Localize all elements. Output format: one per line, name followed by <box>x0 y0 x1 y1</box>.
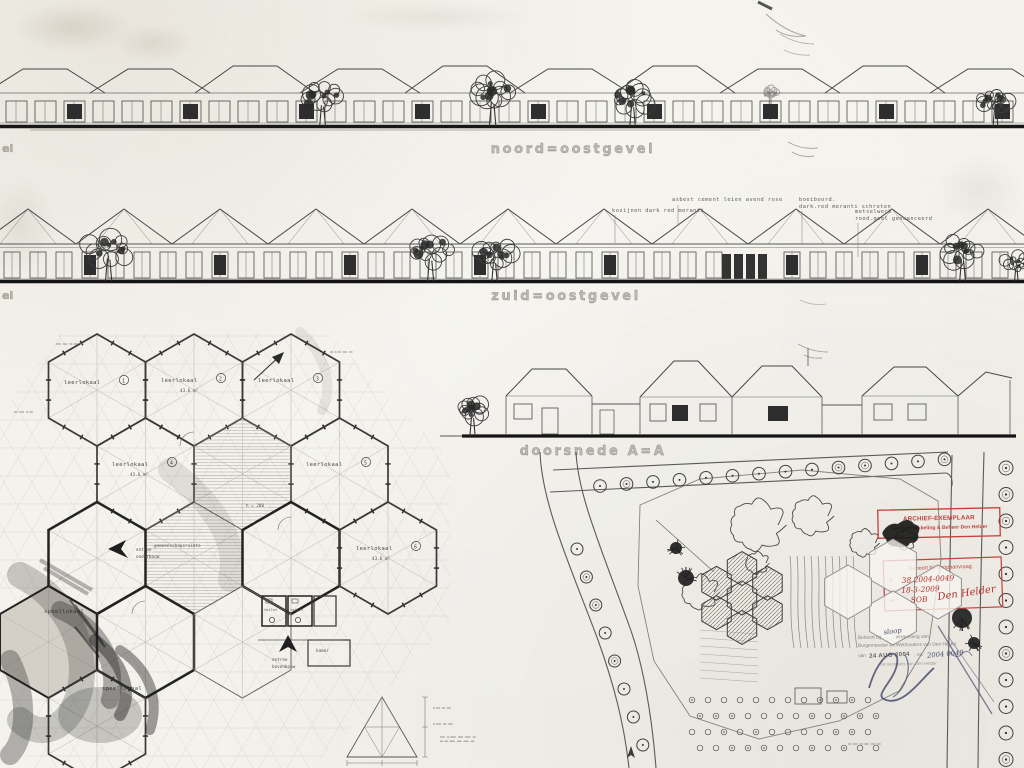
circle-mark <box>801 697 807 703</box>
room-number-1: 1 <box>122 379 125 385</box>
spec-note-roof: asbest cement leien avend rose <box>672 197 783 203</box>
circle-mark <box>1005 758 1007 760</box>
circle-mark <box>953 243 960 250</box>
circle-mark <box>1005 493 1007 495</box>
path-mark <box>172 209 268 244</box>
circle-mark <box>1005 626 1007 628</box>
circle-mark <box>480 248 488 256</box>
line-mark <box>194 362 242 390</box>
line-mark <box>194 642 242 670</box>
rect-mark <box>67 104 82 119</box>
circle-mark <box>632 716 634 718</box>
circle-mark <box>777 745 783 751</box>
path-mark <box>576 209 632 244</box>
path-mark <box>76 209 172 244</box>
circle-mark <box>641 91 645 95</box>
circle-mark <box>721 697 727 703</box>
path-mark <box>818 556 822 648</box>
circle-mark <box>811 715 813 717</box>
line-mark <box>291 558 339 586</box>
path-mark <box>364 209 460 244</box>
circle-mark <box>1005 599 1007 601</box>
circle-mark <box>1005 573 1007 575</box>
circle-mark <box>865 729 871 735</box>
tree-icon <box>470 71 516 126</box>
site-orchard-rows <box>689 697 879 751</box>
path-mark <box>460 209 556 244</box>
circle-mark <box>599 485 601 487</box>
room-area-4: 43.6 m² <box>130 472 148 478</box>
circle-mark <box>793 713 799 719</box>
toilet-label-1: toilet <box>264 608 277 612</box>
line-mark <box>243 390 291 418</box>
elevation-windows <box>6 101 1013 122</box>
rect-mark <box>557 101 578 122</box>
rect-mark <box>847 101 868 122</box>
circle-mark <box>576 548 578 550</box>
circle-mark <box>488 81 493 86</box>
rect-mark <box>604 255 616 275</box>
circle-mark <box>851 731 853 733</box>
link-roofs <box>592 404 862 405</box>
rect-mark <box>238 101 259 122</box>
circle-mark <box>412 247 418 253</box>
line-mark <box>243 530 291 558</box>
circle-mark <box>758 473 760 475</box>
circle-mark <box>731 715 733 717</box>
path-mark <box>268 209 364 244</box>
circle-mark <box>1005 705 1007 707</box>
circle-mark <box>825 713 831 719</box>
circle-mark <box>980 102 986 108</box>
cloud-tree-icon <box>850 529 880 558</box>
spec-note-masonry-1: metselwerk <box>855 209 892 215</box>
circle-mark <box>504 85 512 93</box>
line-mark <box>291 390 339 418</box>
circle-mark <box>713 745 719 751</box>
path-mark <box>825 66 945 93</box>
small-north-marker <box>627 746 635 758</box>
circle-mark <box>769 729 775 735</box>
path-mark <box>192 209 248 244</box>
section-title: doorsnede A=A <box>520 444 667 459</box>
rect-mark <box>531 104 546 119</box>
circle-mark <box>943 458 945 460</box>
rect-mark <box>267 101 288 122</box>
rect-mark <box>734 254 743 279</box>
entrance-1-label-line2: onderbouw <box>136 554 160 560</box>
circle-mark <box>964 249 969 254</box>
rect-mark <box>354 101 375 122</box>
circle-mark <box>763 747 765 749</box>
rect-mark <box>415 104 430 119</box>
illegible-detail-notes <box>433 708 476 741</box>
rect-mark <box>905 101 926 122</box>
spec-note-masonry-2: rood.geel genuanceerd <box>855 216 932 222</box>
window-dark <box>672 405 688 421</box>
common-room-label: gemeenschapsruimte <box>154 543 201 549</box>
circle-mark <box>851 699 853 701</box>
path-mark <box>384 209 440 244</box>
circle-mark <box>793 745 799 751</box>
circle-mark <box>817 729 823 735</box>
room-label-leerlokaal-1: leerlokaal <box>64 380 100 386</box>
cloud-tree-icon <box>731 498 787 552</box>
site-structure <box>827 691 847 703</box>
line-mark <box>194 390 242 418</box>
circle-mark <box>917 460 919 462</box>
circle-mark <box>585 576 587 578</box>
path-mark <box>672 209 728 244</box>
room-number-5: 5 <box>364 461 367 467</box>
path-mark <box>470 417 475 436</box>
path-mark <box>0 209 76 244</box>
circle-mark <box>835 699 837 701</box>
window <box>874 404 892 420</box>
line-mark <box>291 474 339 502</box>
line-mark <box>146 642 194 670</box>
drawing-sheet: el noord=oostgevel kozijnen dark red mer… <box>0 0 1024 768</box>
path-mark <box>797 556 801 648</box>
circle-mark <box>953 255 962 264</box>
circle-mark <box>774 91 778 95</box>
line-mark <box>146 390 194 418</box>
window <box>514 404 532 419</box>
circle-mark <box>960 242 968 250</box>
circle-mark <box>96 250 102 256</box>
site-plan-drawing <box>540 452 1013 768</box>
section-tree <box>458 396 489 436</box>
path-mark <box>90 69 210 93</box>
line-mark <box>97 474 145 502</box>
path-mark <box>930 69 1024 93</box>
circle-mark <box>1005 652 1007 654</box>
entrance-arrow-icon <box>279 635 297 652</box>
tree-icon <box>999 250 1024 281</box>
spec-note-fascia-1: boeiboord. <box>799 197 836 203</box>
north-east-elevation-drawing <box>0 66 1024 130</box>
circle-mark <box>761 713 767 719</box>
circle-mark <box>627 87 635 95</box>
rect-mark <box>763 104 778 119</box>
circle-mark <box>1017 260 1021 264</box>
room-area-2: 43.6 m² <box>180 388 198 394</box>
line-mark <box>146 614 194 642</box>
room-label-leerlokaal-5: leerlokaal <box>306 462 342 468</box>
entrance-arrow-icon <box>108 540 128 558</box>
circle-mark <box>118 247 125 254</box>
circle-mark <box>723 731 725 733</box>
circle-mark <box>705 477 707 479</box>
walls <box>506 380 1010 434</box>
circle-mark <box>487 88 493 94</box>
line-mark <box>243 362 291 390</box>
room-label-leerlokaal-2: leerlokaal <box>161 378 197 384</box>
path-mark <box>556 209 652 244</box>
line-mark <box>224 330 484 768</box>
scanned-architectural-drawing: { "sheet": { "elevation1_label": "noord=… <box>0 0 1024 768</box>
circle-mark <box>890 462 892 464</box>
path-mark <box>811 556 815 648</box>
height-note: h = 280 <box>246 503 265 509</box>
path-mark <box>300 69 420 93</box>
rect-mark <box>586 101 607 122</box>
path-mark <box>846 556 850 648</box>
line-mark <box>0 330 8 768</box>
door <box>542 408 558 434</box>
circle-mark <box>111 239 117 245</box>
north-east-elevation-title: noord=oostgevel <box>491 142 655 157</box>
rect-mark <box>441 101 462 122</box>
circle-mark <box>705 729 711 735</box>
circle-mark <box>309 91 316 98</box>
path-mark <box>480 209 536 244</box>
line-mark <box>194 614 242 642</box>
tree-icon <box>410 235 455 281</box>
rect-mark <box>499 101 520 122</box>
circle-mark <box>764 94 767 97</box>
path-mark <box>748 209 844 244</box>
circle-mark <box>325 89 330 94</box>
circle-mark <box>678 479 680 481</box>
elevation-roofs <box>0 66 1024 93</box>
circle-mark <box>595 604 597 606</box>
room-label-leerlokaal-3: leerlokaal <box>258 378 294 384</box>
circle-mark <box>627 100 634 107</box>
rect-mark <box>209 101 230 122</box>
circle-mark <box>625 483 627 485</box>
circle-mark <box>699 715 701 717</box>
rect-mark <box>35 101 56 122</box>
circle-mark <box>1005 732 1007 734</box>
circle-mark <box>767 91 770 94</box>
entrance-1-label-line1: entree <box>136 547 152 553</box>
room-number-3: 3 <box>316 377 319 383</box>
circle-mark <box>785 697 791 703</box>
circle-mark <box>859 715 861 717</box>
entrance-2-label-line2: bovenbouw <box>272 664 296 670</box>
line-mark <box>388 558 436 586</box>
rect-mark <box>722 254 731 279</box>
room-area-6: 43.6 m² <box>372 556 390 562</box>
circle-mark <box>697 745 703 751</box>
rect-mark <box>183 104 198 119</box>
circle-mark <box>1005 467 1007 469</box>
circle-mark <box>737 697 743 703</box>
window-dark <box>768 406 788 421</box>
line-mark <box>280 330 540 768</box>
line-mark <box>243 558 291 586</box>
line-mark <box>291 446 339 474</box>
circle-mark <box>777 713 783 719</box>
line-mark <box>224 330 484 768</box>
line-mark <box>700 654 758 658</box>
circle-mark <box>614 660 616 662</box>
circle-mark <box>623 688 625 690</box>
rect-mark <box>934 101 955 122</box>
rect-mark <box>93 101 114 122</box>
cloud-tree-icon <box>895 529 917 550</box>
circle-mark <box>480 94 486 100</box>
circle-mark <box>689 729 695 735</box>
circle-mark <box>493 244 501 252</box>
circle-mark <box>1005 520 1007 522</box>
circle-mark <box>997 95 1005 103</box>
circle-mark <box>439 239 446 246</box>
circle-mark <box>469 405 474 410</box>
circle-mark <box>1005 679 1007 681</box>
path-mark <box>960 209 1016 244</box>
rect-mark <box>758 254 767 279</box>
north-arrow-icon <box>254 352 284 380</box>
rect-mark <box>731 101 752 122</box>
spec-note-windows: kozijnen dark red meranti <box>612 208 704 214</box>
circle-mark <box>769 697 775 703</box>
circle-mark <box>504 253 510 259</box>
kamer-label: kamer <box>316 648 329 654</box>
road-edge <box>978 452 984 768</box>
circle-mark <box>873 745 879 751</box>
circle-mark <box>469 413 473 417</box>
path-mark <box>839 556 843 648</box>
rect-mark <box>789 101 810 122</box>
circle-mark <box>835 731 837 733</box>
path-mark <box>288 209 344 244</box>
road-edge <box>576 452 656 768</box>
circle-mark <box>811 747 813 749</box>
site-building-footprint <box>702 552 782 645</box>
circle-mark <box>825 745 831 751</box>
circle-mark <box>984 94 987 97</box>
room-label-leerlokaal-6: leerlokaal <box>356 546 392 552</box>
rect-mark <box>746 254 755 279</box>
line-mark <box>700 670 758 674</box>
rect-mark <box>344 255 356 275</box>
circle-mark <box>784 471 786 473</box>
rect-mark <box>122 101 143 122</box>
door <box>600 410 614 434</box>
toilet-label-2: toilet <box>290 608 303 612</box>
cloud-tree-icon <box>792 496 834 536</box>
rect-mark <box>214 255 226 275</box>
circle-mark <box>1005 546 1007 548</box>
line-mark <box>340 558 388 586</box>
path-mark <box>825 556 829 648</box>
window <box>908 404 926 420</box>
line-mark <box>97 446 145 474</box>
circle-mark <box>745 713 751 719</box>
path-mark <box>790 556 794 648</box>
room-label-leerlokaal-4: leerlokaal <box>112 462 148 468</box>
line-mark <box>700 678 758 682</box>
circle-mark <box>875 715 877 717</box>
entrance-2-label-line1: entree <box>272 657 288 663</box>
path-mark <box>0 69 105 93</box>
circle-mark <box>1010 257 1014 261</box>
rect-mark <box>383 101 404 122</box>
room-number-6: 6 <box>414 545 417 551</box>
module-detail-triangle <box>347 697 476 766</box>
rect-mark <box>916 255 928 275</box>
path-mark <box>853 556 857 648</box>
room-number-2: 2 <box>219 377 222 383</box>
rect-mark <box>818 101 839 122</box>
rect-mark <box>702 101 723 122</box>
circle-mark <box>426 240 434 248</box>
circle-mark <box>304 99 314 109</box>
rect-mark <box>6 101 27 122</box>
rect-mark <box>786 255 798 275</box>
road-edge <box>550 473 946 492</box>
circle-mark <box>819 699 821 701</box>
site-street-trees <box>571 453 1013 766</box>
window <box>700 404 716 421</box>
section-drawing <box>440 348 1016 436</box>
line-mark <box>700 646 758 650</box>
path-mark <box>768 209 824 244</box>
line-mark <box>146 362 194 390</box>
circle-mark <box>837 467 839 469</box>
circle-mark <box>811 469 813 471</box>
circle-mark <box>731 747 733 749</box>
circle-mark <box>1016 266 1019 269</box>
left-edge-elevation-label-1: el <box>2 142 13 155</box>
south-east-elevation-title: zuid=oostgevel <box>491 289 641 304</box>
path-mark <box>940 209 1024 244</box>
site-structure <box>795 688 821 704</box>
path-mark <box>652 209 748 244</box>
circle-mark <box>497 251 504 258</box>
path-mark <box>0 209 56 244</box>
circle-mark <box>857 745 863 751</box>
circle-mark <box>462 408 468 414</box>
circle-mark <box>691 699 693 701</box>
circle-mark <box>715 715 717 717</box>
path-mark <box>510 69 630 93</box>
line-mark <box>280 330 540 768</box>
site-boundary <box>638 470 941 739</box>
circle-mark <box>755 731 757 733</box>
line-mark <box>700 662 758 666</box>
circle-mark <box>618 97 626 105</box>
circle-mark <box>801 729 807 735</box>
circle-mark <box>747 747 749 749</box>
circle-mark <box>1018 264 1021 267</box>
road-edge <box>947 455 952 768</box>
path-mark <box>720 69 840 93</box>
circle-mark <box>705 697 711 703</box>
line-mark <box>340 530 388 558</box>
circle-mark <box>1011 263 1014 266</box>
path-mark <box>195 66 315 93</box>
window <box>650 404 666 421</box>
rect-mark <box>151 101 172 122</box>
rect-mark <box>673 101 694 122</box>
line-mark <box>0 330 8 768</box>
left-edge-elevation-label-2: el <box>2 289 13 302</box>
line-mark <box>49 390 97 418</box>
rect-mark <box>879 104 894 119</box>
circle-mark <box>100 238 109 247</box>
circle-mark <box>652 481 654 483</box>
circle-mark <box>731 475 733 477</box>
circle-mark <box>753 697 759 703</box>
circle-mark <box>334 92 340 98</box>
tree-icon <box>458 396 489 436</box>
circle-mark <box>865 697 871 703</box>
circle-mark <box>604 632 606 634</box>
roof-outline <box>506 361 1012 397</box>
